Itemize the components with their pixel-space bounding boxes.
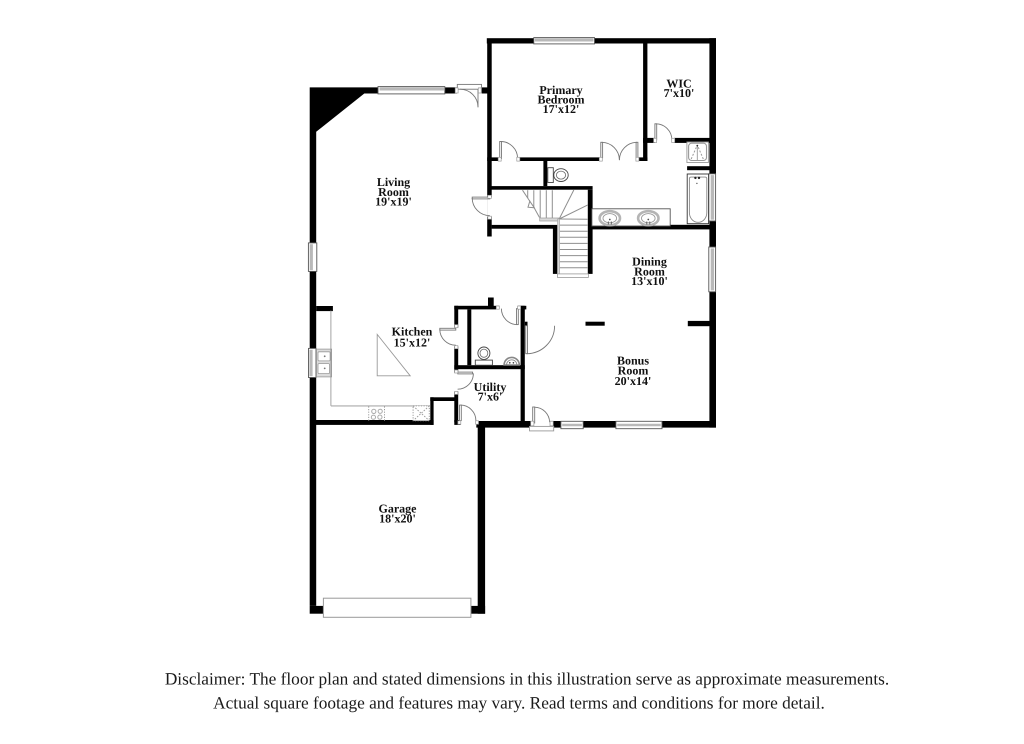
svg-text:15'x12': 15'x12' <box>394 336 431 350</box>
svg-text:19'x19': 19'x19' <box>375 195 412 209</box>
svg-text:20'x14': 20'x14' <box>615 374 652 388</box>
svg-text:Disclaimer: The floor plan and: Disclaimer: The floor plan and stated di… <box>165 670 889 689</box>
svg-text:18'x20': 18'x20' <box>379 512 416 526</box>
svg-text:13'x10': 13'x10' <box>631 274 668 288</box>
svg-text:Actual square footage and feat: Actual square footage and features may v… <box>213 694 825 713</box>
svg-text:7'x10': 7'x10' <box>664 86 695 100</box>
svg-text:17'x12': 17'x12' <box>543 102 580 116</box>
svg-text:7'x6': 7'x6' <box>478 390 503 404</box>
